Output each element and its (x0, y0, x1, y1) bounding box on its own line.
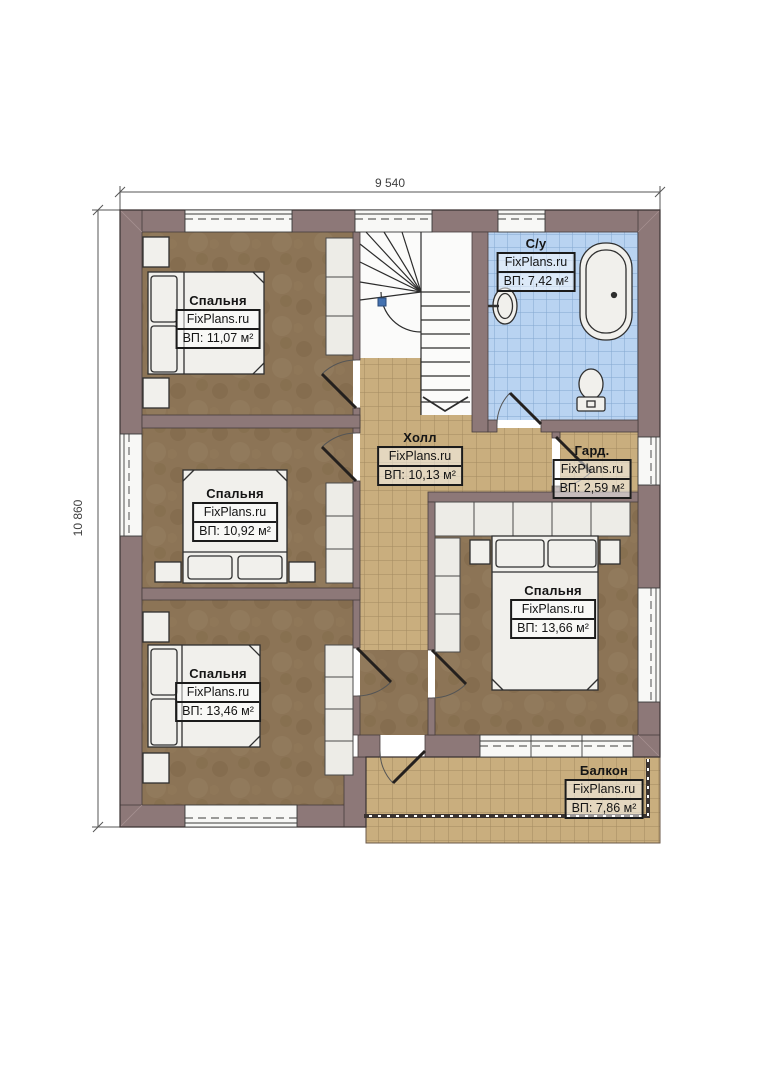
closet-bedroom-top-left (326, 238, 353, 355)
window-right-bedroom (638, 588, 660, 702)
room-brand: FixPlans.ru (555, 461, 630, 480)
label-bedroom-right: Спальня FixPlans.ru ВП: 13,66 м² (510, 583, 596, 639)
room-name: Спальня (510, 583, 596, 598)
room-area: ВП: 10,92 м² (194, 523, 276, 540)
label-hall: Холл FixPlans.ru ВП: 10,13 м² (377, 430, 463, 486)
closet-bedroom-bot-left (325, 645, 353, 775)
label-bedroom-top-left: Спальня FixPlans.ru ВП: 11,07 м² (176, 293, 261, 349)
window-bottom-left (185, 805, 297, 827)
dimension-left: 10 860 (71, 500, 85, 537)
window-top-1 (185, 210, 292, 232)
label-bedroom-bot-left: Спальня FixPlans.ru ВП: 13,46 м² (175, 666, 261, 722)
room-area: ВП: 10,13 м² (379, 467, 461, 484)
label-wardrobe: Гард. FixPlans.ru ВП: 2,59 м² (553, 443, 632, 499)
window-top-2 (355, 210, 432, 232)
room-name: Спальня (176, 293, 261, 308)
room-info-box: FixPlans.ru ВП: 11,07 м² (176, 309, 261, 349)
room-name: Спальня (192, 486, 278, 501)
room-info-box: FixPlans.ru ВП: 10,13 м² (377, 446, 463, 486)
room-name: С/у (497, 236, 576, 251)
floor-plan-drawing (0, 0, 763, 1080)
closet-row-bedroom-right (435, 502, 630, 536)
room-area: ВП: 11,07 м² (178, 330, 259, 347)
label-bedroom-mid-left: Спальня FixPlans.ru ВП: 10,92 м² (192, 486, 278, 542)
room-brand: FixPlans.ru (177, 684, 259, 703)
stairs-node-marker (378, 298, 386, 306)
room-name: Балкон (565, 763, 644, 778)
window-right-wardrobe (638, 437, 660, 485)
bathtub (580, 243, 632, 340)
toilet (577, 369, 605, 411)
room-brand: FixPlans.ru (379, 448, 461, 467)
room-info-box: FixPlans.ru ВП: 7,42 м² (497, 252, 576, 292)
room-brand: FixPlans.ru (512, 601, 594, 620)
room-area: ВП: 2,59 м² (555, 480, 630, 497)
label-balcony: Балкон FixPlans.ru ВП: 7,86 м² (565, 763, 644, 819)
room-name: Гард. (553, 443, 632, 458)
window-left (120, 434, 142, 536)
room-brand: FixPlans.ru (499, 254, 574, 273)
room-brand: FixPlans.ru (178, 311, 259, 330)
closet-column-bedroom-right (435, 538, 460, 652)
room-info-box: FixPlans.ru ВП: 13,46 м² (175, 682, 261, 722)
room-area: ВП: 7,42 м² (499, 273, 574, 290)
room-name: Холл (377, 430, 463, 445)
room-name: Спальня (175, 666, 261, 681)
room-info-box: FixPlans.ru ВП: 7,86 м² (565, 779, 644, 819)
closet-bedroom-mid-left (326, 483, 353, 583)
room-area: ВП: 13,46 м² (177, 703, 259, 720)
room-brand: FixPlans.ru (194, 504, 276, 523)
room-area: ВП: 7,86 м² (567, 800, 642, 817)
label-bathroom: С/у FixPlans.ru ВП: 7,42 м² (497, 236, 576, 292)
room-brand: FixPlans.ru (567, 781, 642, 800)
dimension-top: 9 540 (375, 176, 405, 190)
window-balcony-band (480, 735, 633, 757)
room-area: ВП: 13,66 м² (512, 620, 594, 637)
room-info-box: FixPlans.ru ВП: 2,59 м² (553, 459, 632, 499)
floor-plan-page: 9 540 10 860 (0, 0, 763, 1080)
room-info-box: FixPlans.ru ВП: 13,66 м² (510, 599, 596, 639)
room-info-box: FixPlans.ru ВП: 10,92 м² (192, 502, 278, 542)
window-top-3 (498, 210, 545, 232)
